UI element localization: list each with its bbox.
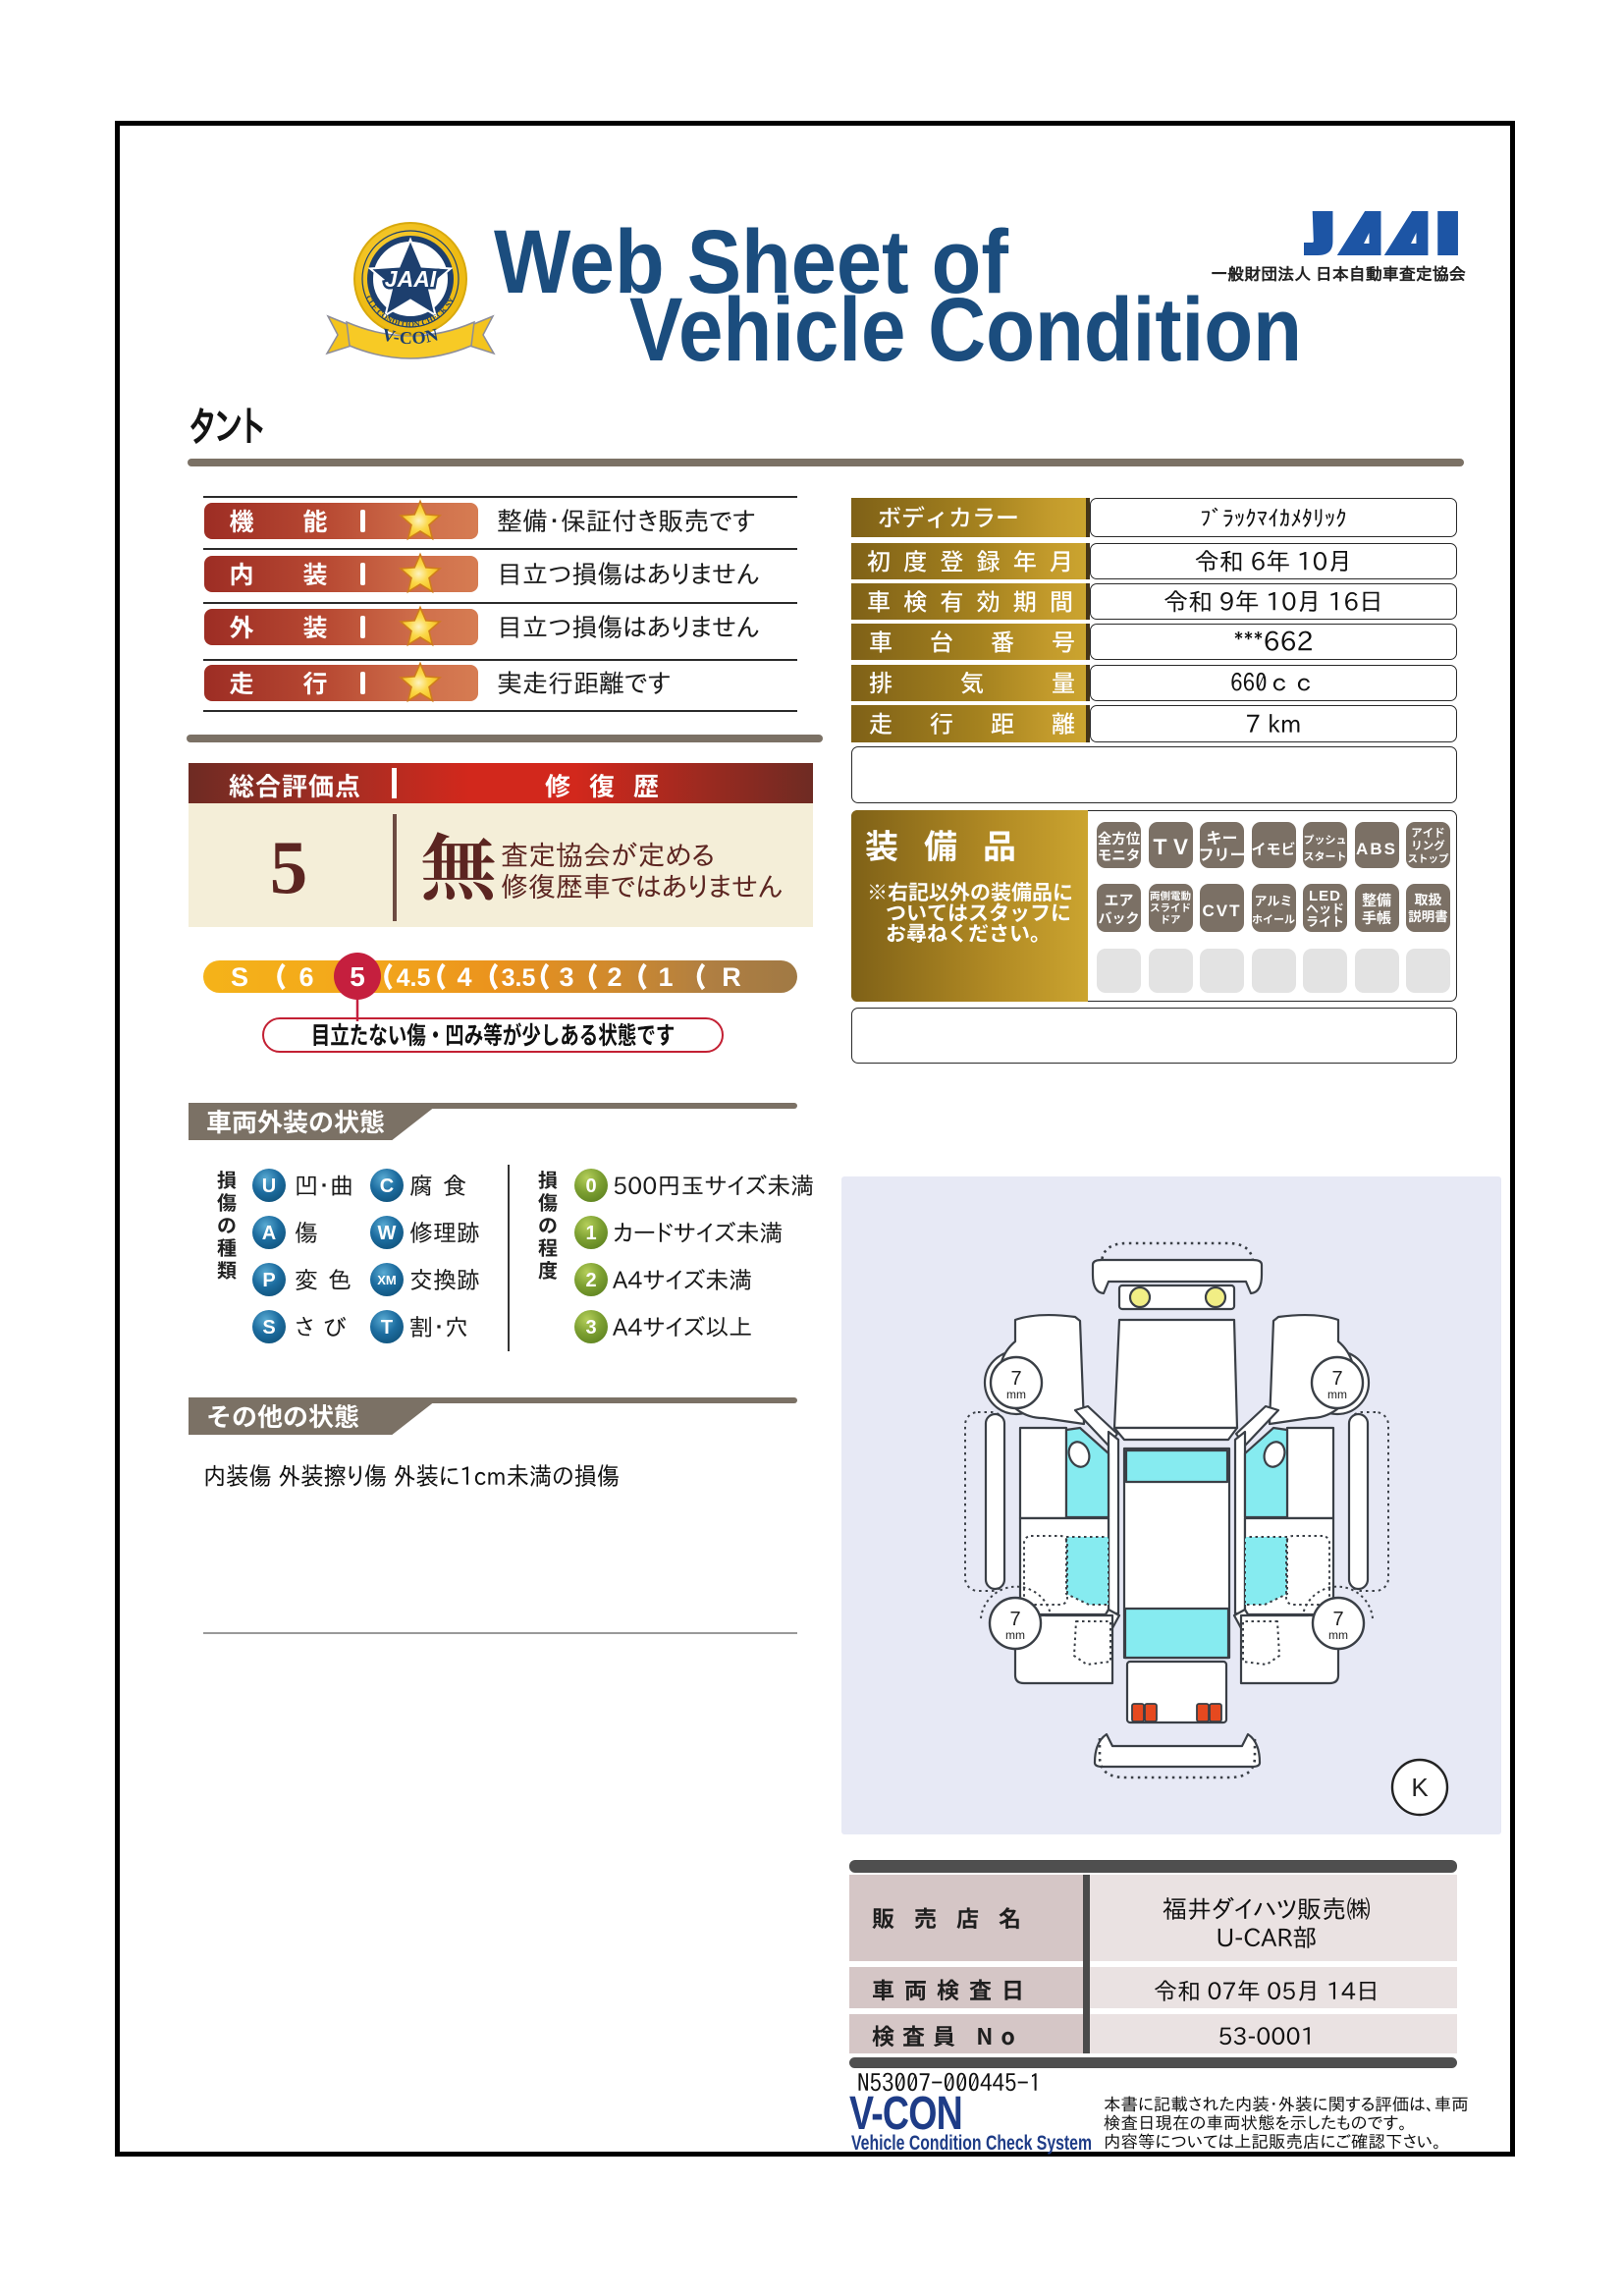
- svg-text:K: K: [1411, 1773, 1429, 1802]
- svg-text:JAAI: JAAI: [385, 266, 437, 292]
- svg-text:mm: mm: [1006, 1388, 1026, 1401]
- svg-text:mm: mm: [1005, 1628, 1025, 1642]
- svg-text:7: 7: [1009, 1609, 1020, 1630]
- svg-text:7: 7: [1331, 1368, 1342, 1390]
- svg-text:mm: mm: [1328, 1628, 1348, 1642]
- svg-text:7: 7: [1332, 1609, 1343, 1630]
- svg-text:7: 7: [1010, 1368, 1021, 1390]
- svg-text:mm: mm: [1327, 1388, 1347, 1401]
